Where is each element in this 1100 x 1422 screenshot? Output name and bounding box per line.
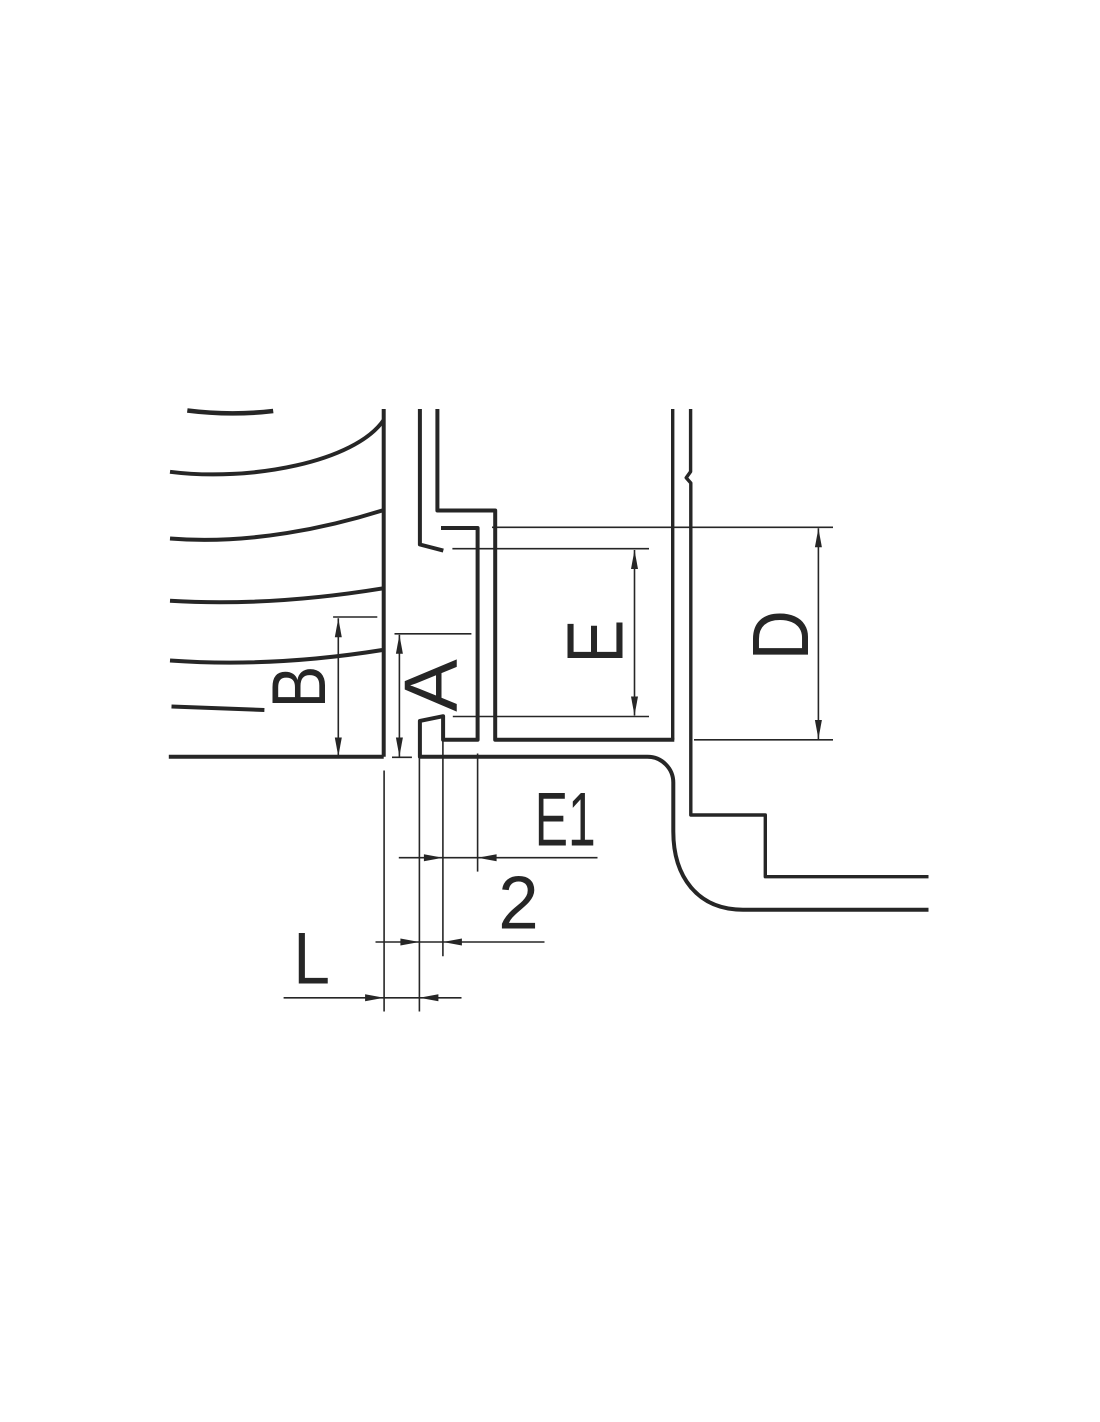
svg-text:E1: E1 (535, 777, 596, 862)
svg-text:L: L (293, 917, 330, 999)
svg-text:B: B (257, 666, 342, 708)
svg-text:D: D (735, 610, 825, 660)
svg-text:2: 2 (498, 861, 538, 945)
svg-text:A: A (389, 659, 473, 712)
svg-text:E: E (551, 620, 640, 664)
